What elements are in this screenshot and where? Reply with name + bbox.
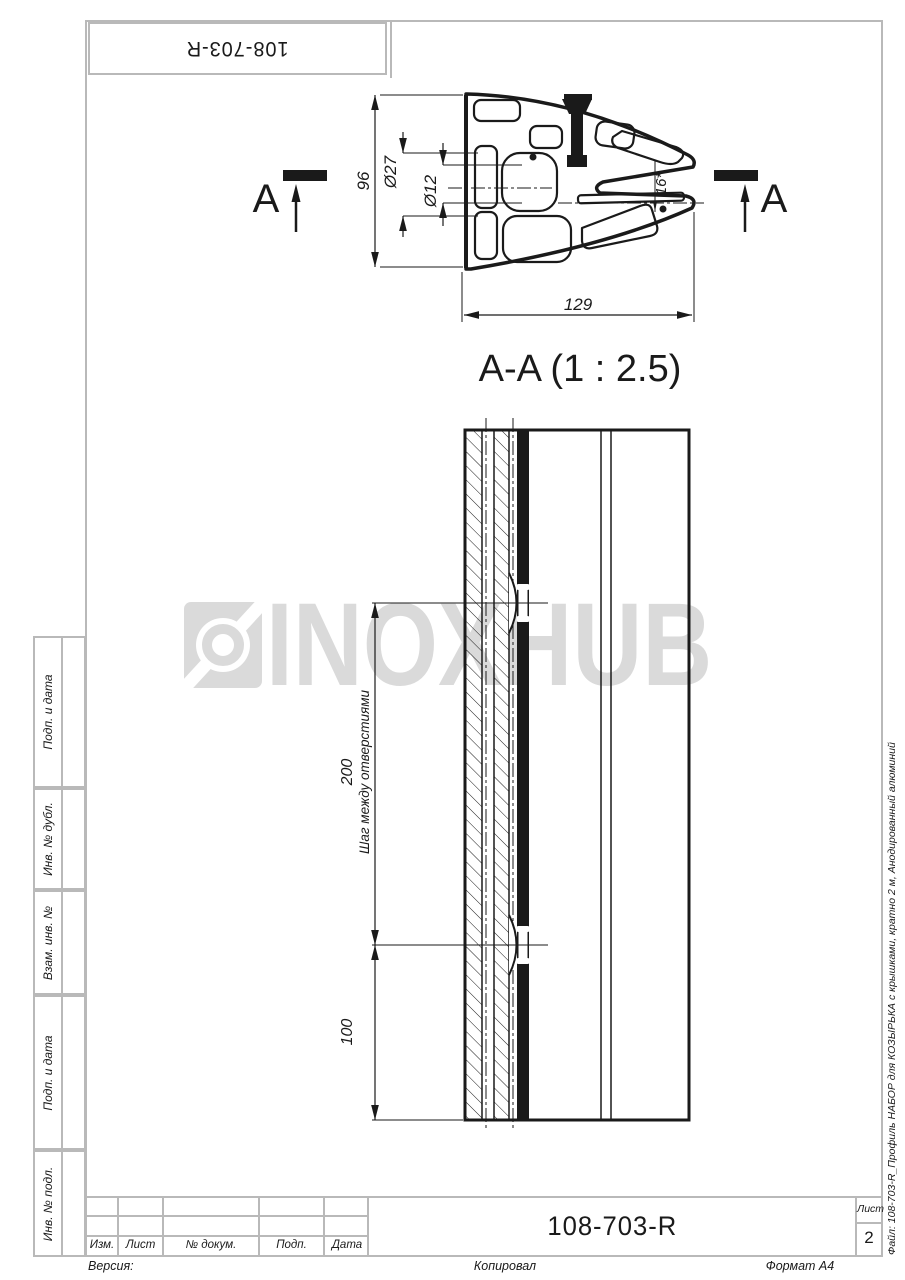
dim-inner-dia: Ø12	[421, 174, 440, 208]
version-label: Версия:	[88, 1259, 134, 1273]
side-stamp-box-2: Инв. № дубл.	[33, 788, 86, 890]
drawing-sheet: INOXHUB 108-703-R A A	[0, 0, 905, 1280]
side-stamp-label: Подп. и дата	[41, 1035, 55, 1110]
dim-height: 96	[354, 171, 373, 190]
side-stamp-box-1: Подп. и дата	[33, 636, 86, 788]
format-label: Формат A4	[740, 1259, 860, 1273]
col-doc: № докум.	[164, 1239, 258, 1251]
top-stamp-tick	[390, 22, 392, 78]
title-block-revision-table: Изм. Лист № докум. Подп. Дата	[85, 1196, 369, 1257]
section-title: A-A (1 : 2.5)	[430, 348, 730, 391]
col-podp: Подп.	[260, 1239, 323, 1251]
section-cut-mark-right: A	[714, 170, 788, 232]
side-stamp-label: Инв. № дубл.	[41, 802, 55, 876]
sheet-number: 2	[857, 1228, 881, 1248]
top-designation-text: 108-703-R	[186, 24, 289, 73]
col-list: Лист	[119, 1239, 162, 1251]
side-stamp-box-3: Взам. инв. №	[33, 890, 86, 995]
section-aa-drawing: 200 Шаг между отверстиями 100	[330, 395, 710, 1140]
col-data: Дата	[325, 1239, 369, 1251]
sheet-label: Лист	[857, 1203, 881, 1215]
title-block-sheet-cell: Лист 2	[855, 1196, 883, 1257]
dim-width: 129	[564, 295, 593, 314]
section-cut-mark-left: A	[253, 170, 327, 232]
dim-step-note: Шаг между отверстиями	[357, 689, 372, 854]
col-izm: Изм.	[87, 1239, 117, 1251]
profile-section-drawing: A A	[235, 80, 815, 330]
top-designation-box: 108-703-R	[88, 22, 387, 75]
side-stamp-label: Инв. № подл.	[41, 1166, 55, 1240]
side-stamp-box-5: Инв. № подл.	[33, 1150, 86, 1257]
side-stamp-label: Взам. инв. №	[41, 905, 55, 979]
file-note: Файл: 108-703-R_Профиль НАБОР для КОЗЫРЬ…	[886, 785, 898, 1255]
profile-dimensions	[375, 95, 694, 322]
title-block-designation: 108-703-R	[547, 1198, 677, 1255]
dim-angle: 16*	[653, 172, 670, 196]
copied-label: Копировал	[380, 1259, 630, 1273]
dim-step: 200	[339, 759, 356, 787]
side-stamp-label: Подп. и дата	[41, 674, 55, 749]
dim-end: 100	[339, 1019, 356, 1046]
section-letter-right: A	[761, 177, 788, 221]
side-stamp-box-4: Подп. и дата	[33, 995, 86, 1150]
dim-outer-dia: Ø27	[381, 155, 400, 189]
title-block-designation-cell: 108-703-R	[367, 1196, 857, 1257]
section-letter-left: A	[253, 177, 280, 221]
